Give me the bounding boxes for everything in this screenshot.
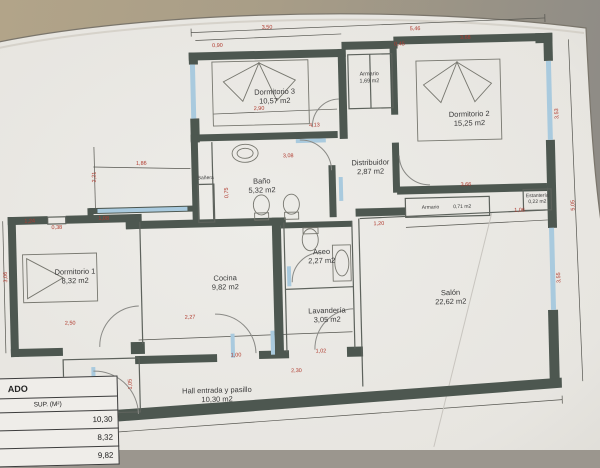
toilet-icon (302, 229, 319, 251)
wall-segment (543, 33, 553, 61)
wall-segment (393, 33, 543, 45)
door-arcs (55, 97, 436, 418)
window-segment (339, 177, 344, 201)
wall-segment (126, 217, 286, 229)
partitions-layer (44, 50, 556, 414)
wall-segment (341, 41, 397, 50)
paper-crease (428, 213, 498, 448)
door-arc (314, 309, 355, 350)
sink-icon (232, 144, 258, 163)
window-segment (549, 228, 556, 310)
walls-layer (3, 33, 562, 428)
window-segment (231, 334, 236, 358)
window-segment (296, 138, 326, 143)
bidet-icon (283, 194, 299, 214)
door-arc (399, 155, 430, 186)
floor-plan-photo: Dormitorio 310,57 m2Armario1,69 m2Dormit… (0, 0, 600, 450)
wall-segment (548, 310, 560, 384)
wall-segment (135, 354, 217, 364)
wall-segment (390, 45, 399, 115)
door-arc (292, 253, 322, 283)
bed-icon-dormitorio1 (23, 253, 98, 303)
bed-icon-dormitorio2 (416, 59, 502, 141)
table-area-value: 9,82 (0, 446, 119, 467)
plan-sheet: Dormitorio 310,57 m2Armario1,69 m2Dormit… (0, 0, 600, 457)
window-segment (190, 65, 196, 119)
bidet-icon (285, 212, 299, 219)
wall-segment (328, 165, 336, 217)
window-segment (287, 266, 291, 286)
window-segment (270, 331, 275, 355)
door-arc (312, 99, 340, 127)
area-summary-table: ADO SUP. (M²) 10,308,329,82 (0, 376, 120, 468)
window-segment (546, 61, 553, 140)
washbasin-icon (335, 250, 350, 276)
sink-icon (237, 148, 253, 158)
wall-segment (546, 140, 557, 228)
wall-segment (8, 217, 19, 357)
wall-segment (392, 143, 400, 193)
wall-segment (397, 183, 547, 195)
wall-segment (60, 378, 563, 426)
wall-segment (189, 49, 346, 61)
wall-segment (355, 207, 405, 216)
door-arc (99, 306, 140, 347)
toilet-icon (253, 195, 269, 215)
door-arc (300, 139, 332, 171)
wall-segment (189, 52, 198, 64)
door-arc (215, 313, 256, 354)
wall-segment (338, 49, 348, 139)
bed-icon-dormitorio3 (212, 60, 310, 126)
wall-segment (11, 348, 63, 357)
bathtub-icon (198, 184, 215, 222)
